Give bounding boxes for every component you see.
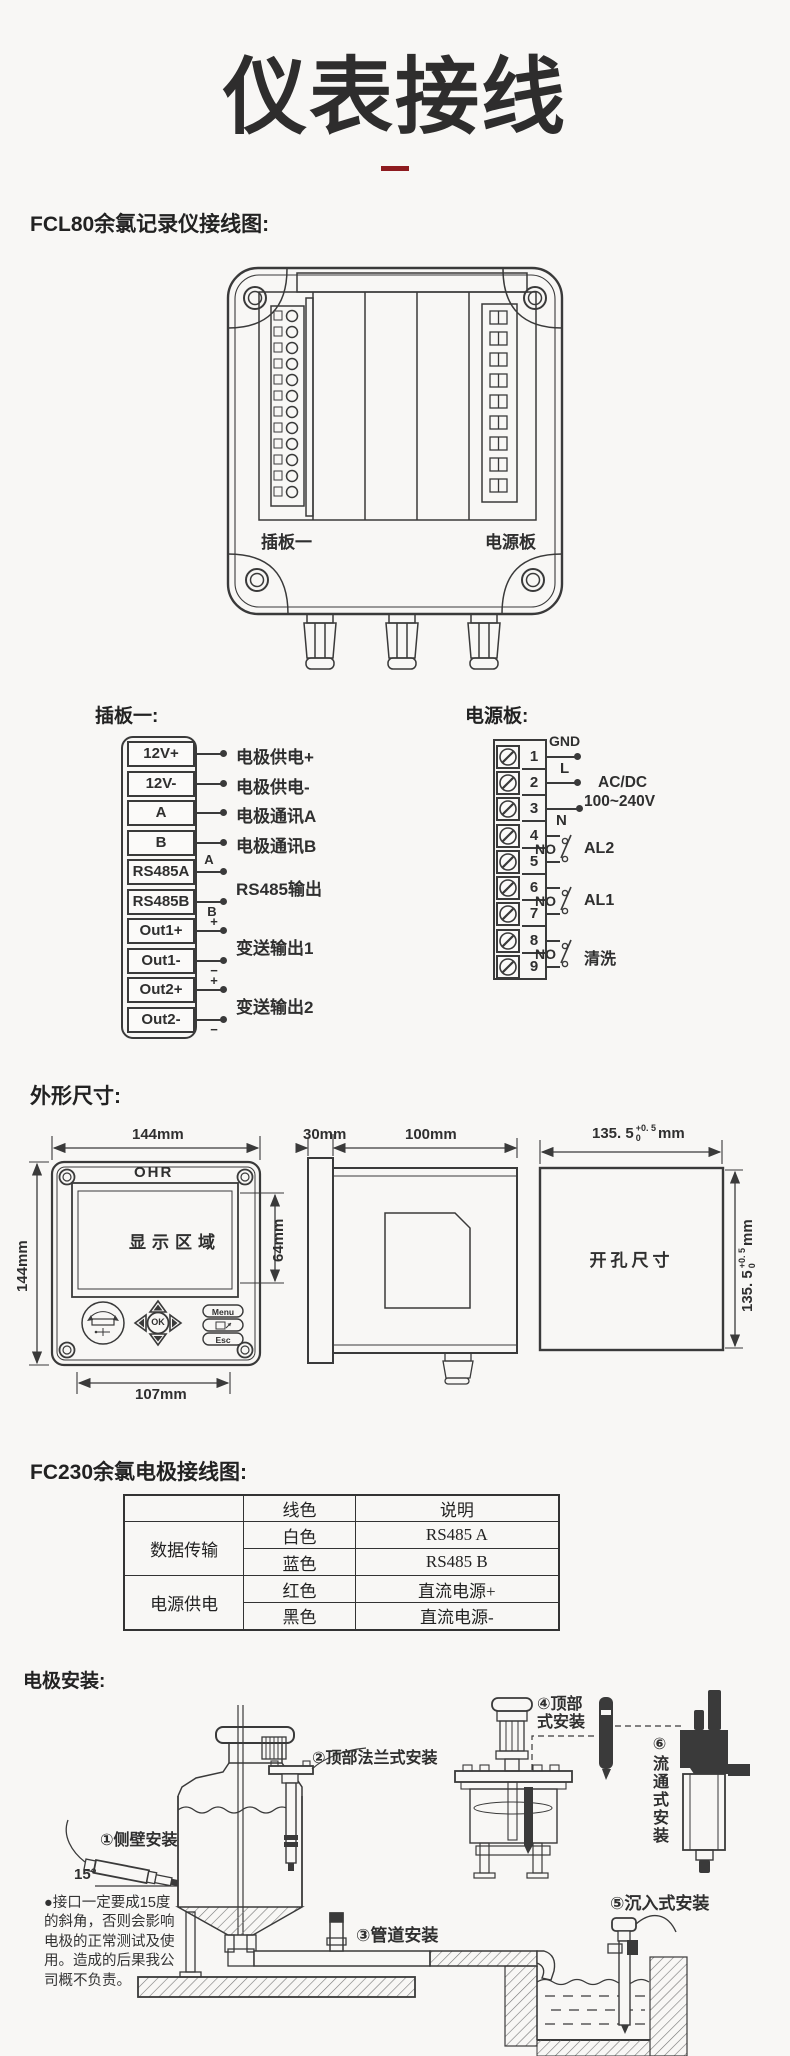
label-no: NO xyxy=(530,946,556,962)
wire-dot xyxy=(220,868,227,875)
heading-fc230-wiring: FC230余氯电极接线图: xyxy=(30,1456,247,1486)
table-cell-color: 蓝色 xyxy=(244,1549,355,1576)
terminal-divider xyxy=(522,925,547,927)
table-cell-color: 白色 xyxy=(244,1522,355,1549)
screw-terminal-icon xyxy=(496,824,520,848)
page: 仪表接线 FCL80余氯记录仪接线图: xyxy=(0,0,790,2056)
wire xyxy=(547,782,577,784)
wire-dot xyxy=(574,753,581,760)
dim-bezel-depth: 30mm xyxy=(303,1126,346,1143)
terminal-a: A xyxy=(127,800,195,826)
cutout-unit: mm xyxy=(739,1219,756,1246)
esc-button-label: Esc xyxy=(203,1335,243,1345)
label-voltage-range: 100~240V xyxy=(584,793,655,811)
recorder-rear-diagram xyxy=(225,266,570,686)
table-header-empty xyxy=(124,1495,244,1522)
table-header-wire-color: 线色 xyxy=(244,1495,355,1522)
dim-bottom-width: 107mm xyxy=(135,1386,187,1403)
ok-button-label: OK xyxy=(147,1317,169,1327)
heading-dimensions: 外形尺寸: xyxy=(30,1080,121,1110)
table-cell-color: 黑色 xyxy=(244,1603,355,1630)
heading-plugboard: 插板一: xyxy=(95,701,158,728)
label-install-top-flange: ②顶部法兰式安装 xyxy=(312,1744,438,1768)
wire xyxy=(195,960,222,962)
dim-front-height: 144mm xyxy=(14,1240,31,1292)
terminal-number: 3 xyxy=(524,799,544,819)
label-install-flow: ⑥流通式安装 xyxy=(646,1734,670,1864)
cutout-tolerance: +0. 5 0 xyxy=(738,1248,757,1268)
wire xyxy=(195,842,222,844)
rear-power-label: 电源板 xyxy=(485,528,536,553)
wire xyxy=(195,783,222,785)
table-cell-desc: 直流电源- xyxy=(355,1603,559,1630)
label-angle-15deg: 15° xyxy=(74,1866,97,1883)
heading-fcl80-wiring: FCL80余氯记录仪接线图: xyxy=(30,208,269,238)
wire-dot xyxy=(220,839,227,846)
side-view-drawing xyxy=(295,1120,535,1385)
terminal-12v-pos: 12V+ xyxy=(127,741,195,767)
tolerance-lower: 0 xyxy=(636,1134,656,1144)
table-cell-group: 数据传输 xyxy=(124,1522,244,1576)
wire-dot xyxy=(220,780,227,787)
terminal-out1-pos: Out1+ xyxy=(127,918,195,944)
label-electrode-comm-b: 电极通讯B xyxy=(236,832,316,857)
wire xyxy=(195,753,222,755)
label-neutral: N xyxy=(556,812,567,829)
label-install-pipe: ③管道安装 xyxy=(356,1921,438,1946)
label-electrode-comm-a: 电极通讯A xyxy=(236,802,316,827)
label-gnd: GND xyxy=(549,733,580,749)
table-cell-color: 红色 xyxy=(244,1576,355,1603)
tolerance-lower: 0 xyxy=(748,1248,758,1268)
terminal-12v-neg: 12V- xyxy=(127,771,195,797)
label-acdc: AC/DC xyxy=(598,774,647,792)
table-cell-desc: RS485 A xyxy=(355,1522,559,1549)
terminal-divider xyxy=(522,768,547,770)
label-electrode-supply-pos: 电极供电+ xyxy=(236,743,314,768)
wire-dot xyxy=(220,1016,227,1023)
dim-front-width: 144mm xyxy=(132,1126,184,1143)
wire-dot xyxy=(220,898,227,905)
cutout-unit: mm xyxy=(658,1125,685,1142)
wire-mark-plus: + xyxy=(205,915,223,928)
table-cell-desc: 直流电源+ xyxy=(355,1576,559,1603)
screw-terminal-icon xyxy=(496,771,520,795)
install-warning-note: ●接口一定要成15度的斜角，否则会影响电极的正常测试及使用。造成的后果我公司概不… xyxy=(44,1894,184,1991)
terminal-out2-pos: Out2+ xyxy=(127,977,195,1003)
title-accent-dash xyxy=(381,166,409,171)
terminal-rs485a: RS485A xyxy=(127,859,195,885)
label-no: NO xyxy=(530,841,556,857)
wire xyxy=(195,812,222,814)
cutout-main: 135. 5 xyxy=(592,1125,634,1142)
label-rs485-output: RS485输出 xyxy=(236,875,322,900)
terminal-divider xyxy=(522,873,547,875)
label-transmit-output2: 变送输出2 xyxy=(236,993,313,1018)
wire-mark-minus: − xyxy=(205,1023,223,1036)
screw-terminal-icon xyxy=(496,876,520,900)
screw-terminal-icon xyxy=(496,797,520,821)
label-install-submersible: ⑤沉入式安装 xyxy=(610,1889,709,1914)
label-al2: AL2 xyxy=(584,840,614,858)
heading-installation: 电极安装: xyxy=(23,1666,105,1693)
label-transmit-output1: 变送输出1 xyxy=(236,934,313,959)
wire-dot xyxy=(220,809,227,816)
dim-body-depth: 100mm xyxy=(405,1126,457,1143)
relay-switch-icon xyxy=(557,937,577,972)
wire-mark-a: A xyxy=(200,853,218,866)
relay-switch-icon xyxy=(557,884,577,919)
screw-terminal-icon xyxy=(496,955,520,979)
rear-slot1-label: 插板一 xyxy=(261,528,312,553)
terminal-number: 1 xyxy=(524,747,544,767)
table-cell-desc: RS485 B xyxy=(355,1549,559,1576)
table-cell-group: 电源供电 xyxy=(124,1576,244,1630)
wire-dot xyxy=(220,750,227,757)
wire xyxy=(195,901,222,903)
wire xyxy=(547,808,579,810)
electrode-wiring-table: 线色 说明 数据传输 白色 RS485 A 蓝色 RS485 B 电源供电 红色… xyxy=(123,1494,560,1631)
wire xyxy=(195,871,222,873)
wire-dot xyxy=(220,957,227,964)
terminal-rs485b: RS485B xyxy=(127,889,195,915)
screw-terminal-icon xyxy=(496,850,520,874)
wire-dot xyxy=(574,779,581,786)
terminal-divider xyxy=(522,820,547,822)
terminal-out2-neg: Out2- xyxy=(127,1007,195,1033)
dim-cutout-width: 135. 5 +0. 5 0 mm xyxy=(592,1124,685,1143)
screw-terminal-icon xyxy=(496,902,520,926)
label-live: L xyxy=(560,760,569,777)
brand-logo: OHR xyxy=(134,1164,173,1181)
label-install-top: ④顶部式安装 xyxy=(537,1696,595,1733)
label-electrode-supply-neg: 电极供电- xyxy=(236,773,310,798)
label-wash: 清洗 xyxy=(584,945,616,969)
screw-terminal-icon xyxy=(496,929,520,953)
label-no: NO xyxy=(530,893,556,909)
terminal-out1-neg: Out1- xyxy=(127,948,195,974)
cutout-main: 135. 5 xyxy=(739,1270,756,1312)
label-install-sidewall: ①侧壁安装 xyxy=(100,1826,178,1850)
dim-display-height: 64mm xyxy=(270,1219,287,1262)
heading-powerboard: 电源板: xyxy=(465,701,528,728)
wire xyxy=(195,930,222,932)
label-al1: AL1 xyxy=(584,892,614,910)
wire-dot xyxy=(220,986,227,993)
terminal-number: 2 xyxy=(524,773,544,793)
screw-terminal-icon xyxy=(496,745,520,769)
terminal-divider xyxy=(522,794,547,796)
menu-button-label: Menu xyxy=(203,1307,243,1317)
wire xyxy=(195,1019,222,1021)
cutout-label: 开孔尺寸 xyxy=(540,1246,723,1271)
cutout-tolerance: +0. 5 0 xyxy=(636,1124,656,1143)
terminal-b: B xyxy=(127,830,195,856)
wire xyxy=(195,989,222,991)
wire-mark-plus: + xyxy=(205,974,223,987)
wire-dot xyxy=(576,805,583,812)
display-area-label: 显示区域 xyxy=(92,1228,258,1253)
dim-cutout-height: 135. 5 +0. 5 0 mm xyxy=(738,1219,757,1312)
table-header-description: 说明 xyxy=(355,1495,559,1522)
wire xyxy=(547,756,577,758)
page-title: 仪表接线 xyxy=(0,30,790,151)
wire-dot xyxy=(220,927,227,934)
relay-switch-icon xyxy=(557,832,577,867)
